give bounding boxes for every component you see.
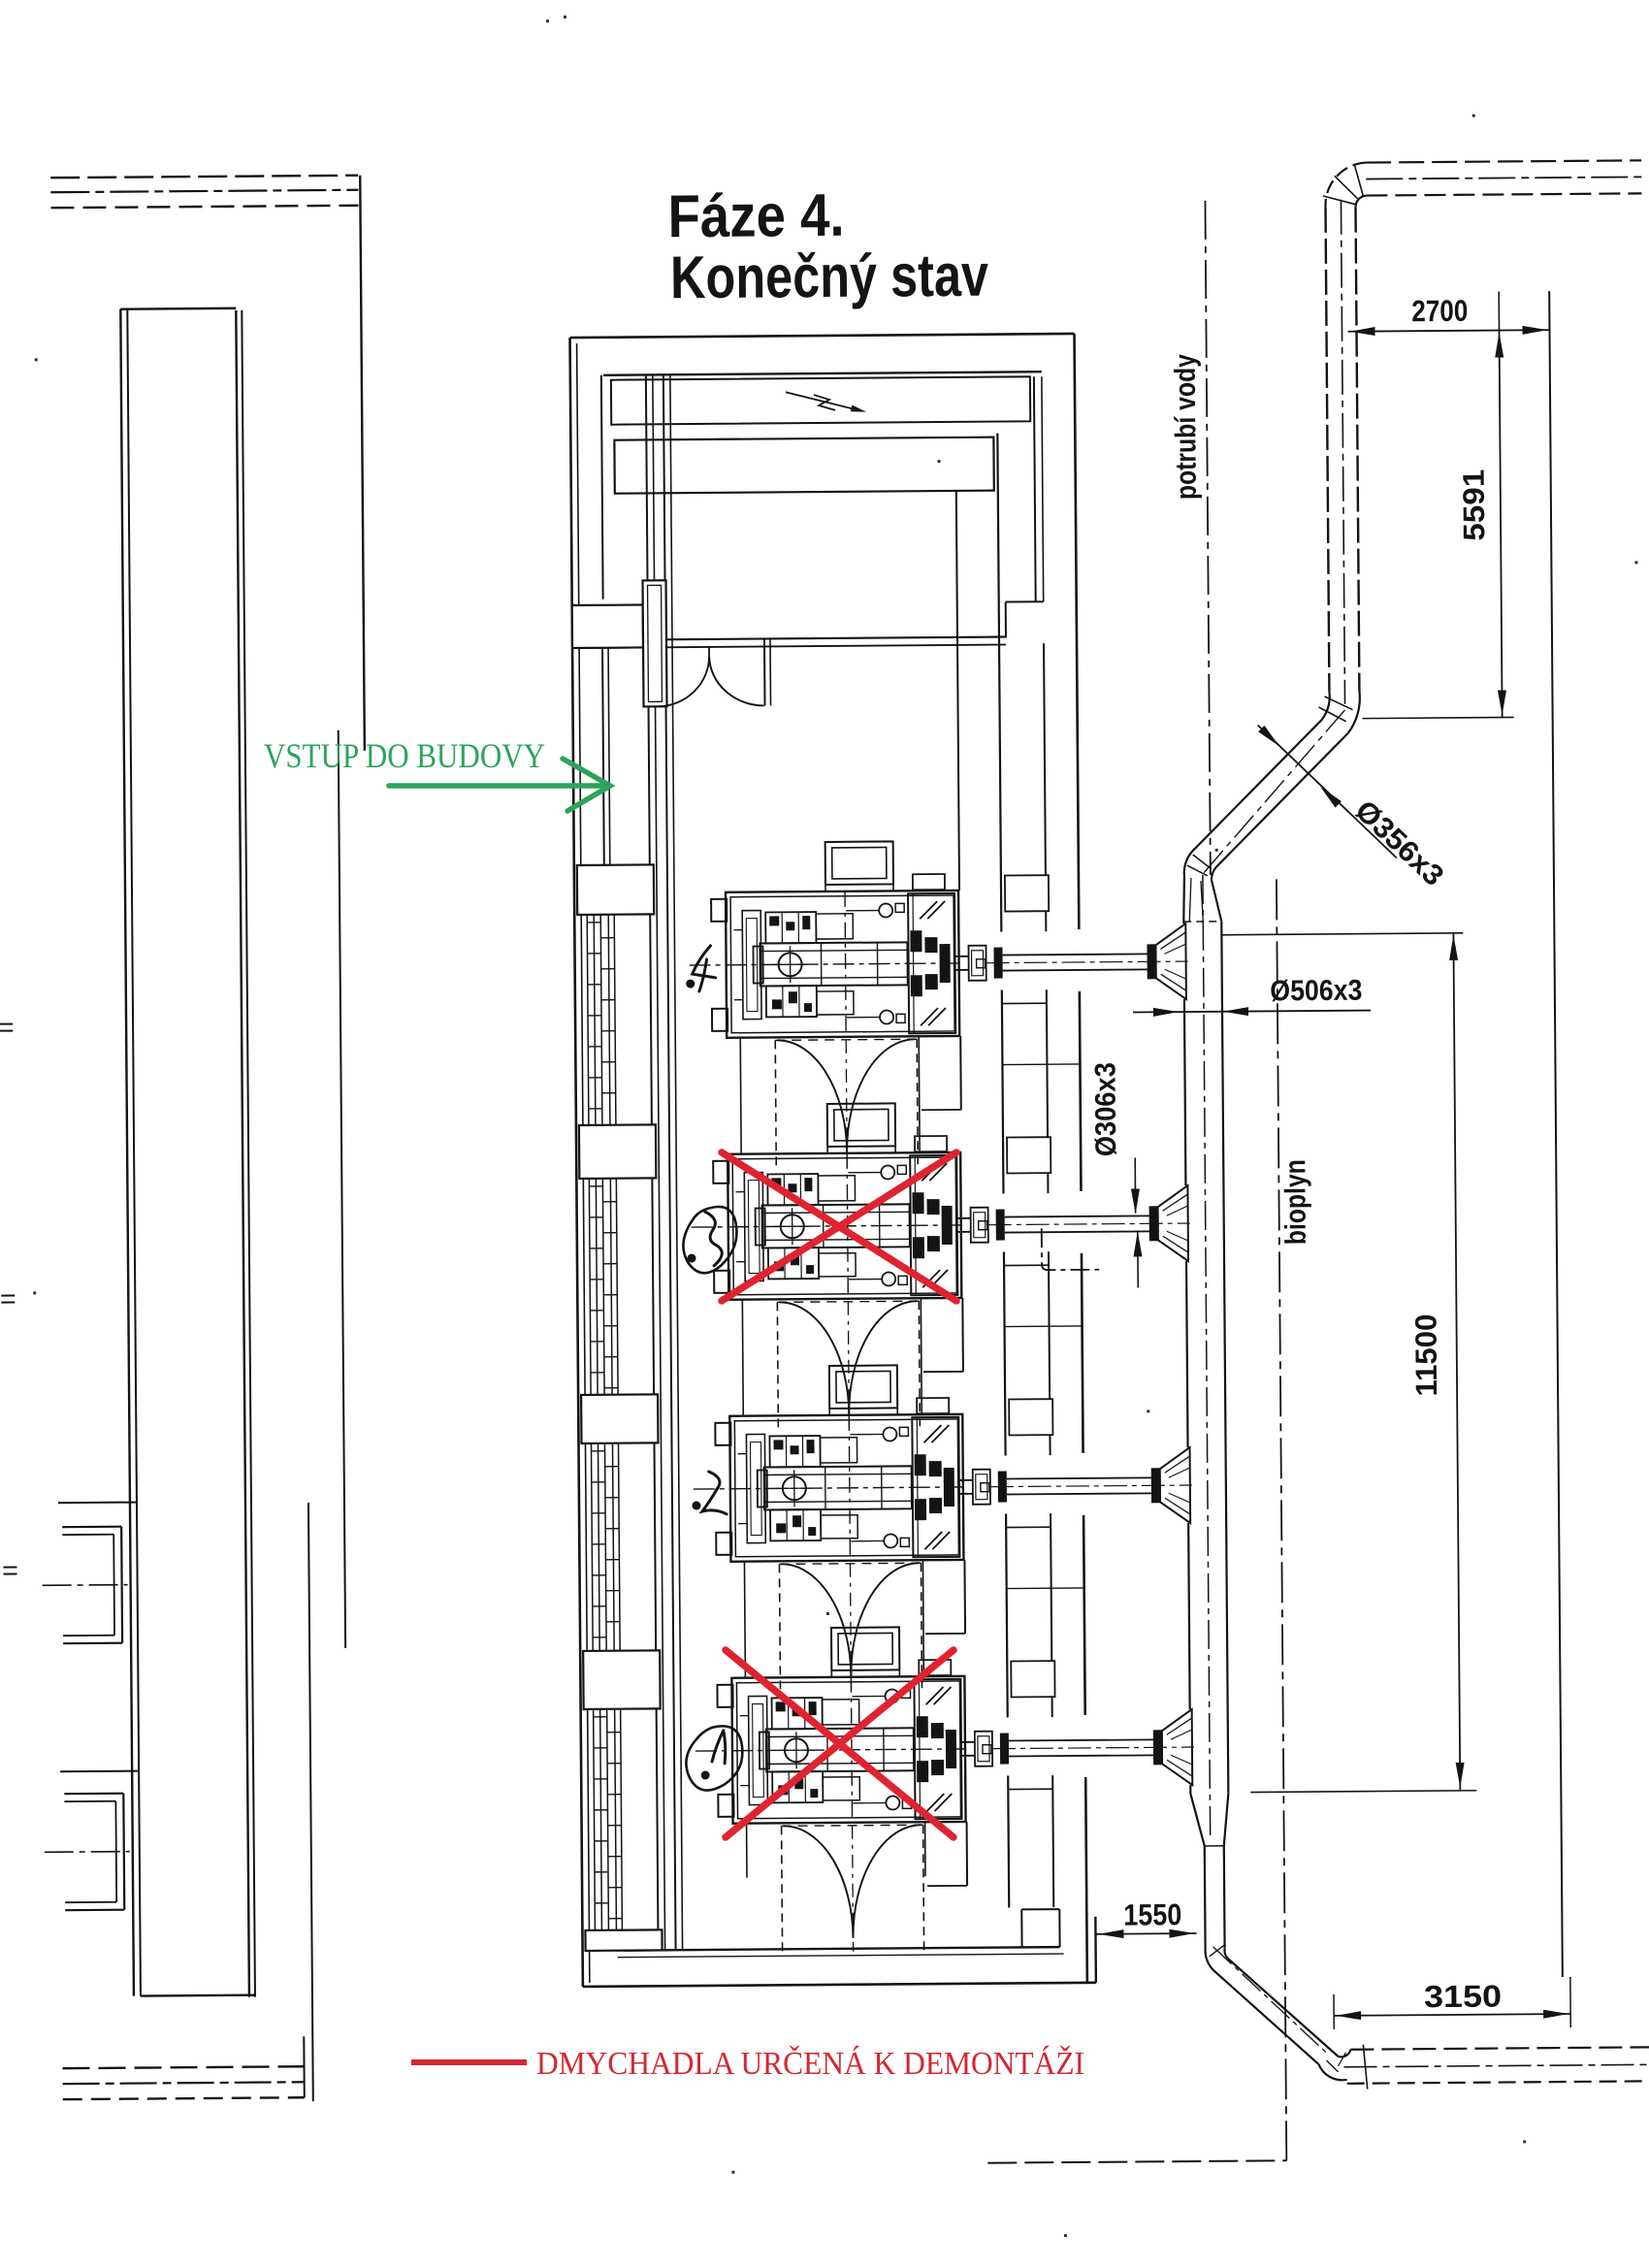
svg-text:11500: 11500 [1408,1313,1443,1396]
svg-text:1550: 1550 [1123,1897,1181,1931]
svg-text:2700: 2700 [1411,294,1468,328]
svg-text:3150: 3150 [1424,1979,1502,2015]
svg-text:5591: 5591 [1457,470,1492,541]
svg-text:Ø306x3: Ø306x3 [1089,1062,1122,1156]
svg-text:Konečný stav: Konečný stav [670,243,989,312]
svg-text:Fáze 4.: Fáze 4. [667,182,845,250]
svg-text:Ø506x3: Ø506x3 [1270,975,1362,1008]
svg-text:potrubí vody: potrubí vody [1170,354,1203,501]
svg-text:VSTUP DO BUDOVY: VSTUP DO BUDOVY [264,736,545,775]
svg-text:bioplyn: bioplyn [1279,1159,1312,1245]
svg-text:DMYCHADLA URČENÁ K DEMONTÁŽI: DMYCHADLA URČENÁ K DEMONTÁŽI [536,2045,1084,2082]
